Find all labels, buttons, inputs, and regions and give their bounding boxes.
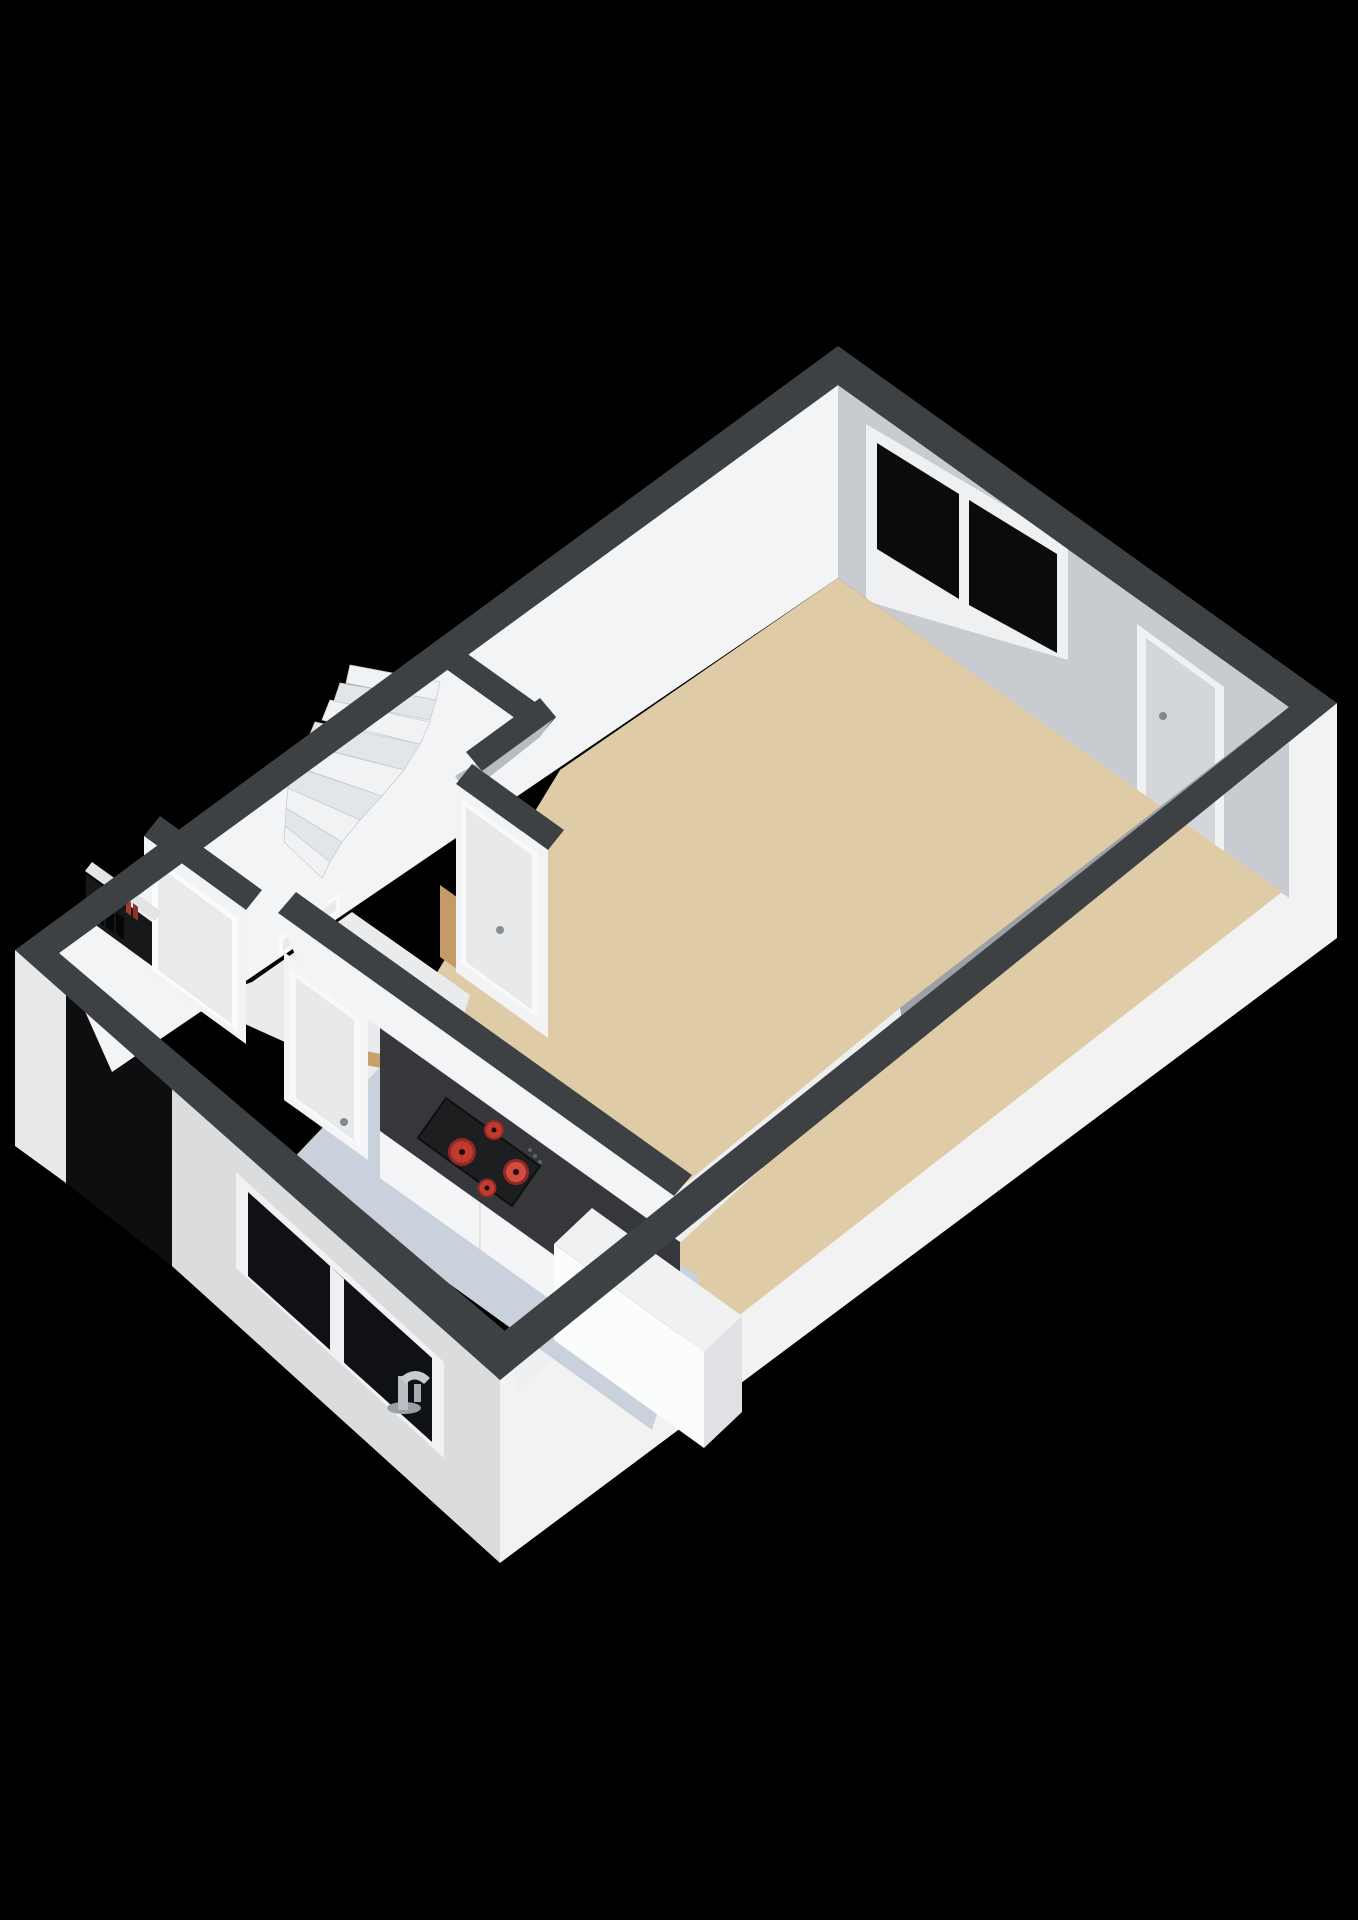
floorplan-3d-render [0, 0, 1358, 1920]
back-door-handle [1159, 712, 1167, 720]
floorplan-canvas [0, 0, 1358, 1920]
burner-center [485, 1186, 490, 1191]
hall-living-door-handle [496, 926, 504, 934]
burner-center [492, 1128, 497, 1133]
kitchen-window-mullion [330, 1266, 344, 1363]
burner-center [513, 1169, 519, 1175]
burner-center [459, 1149, 465, 1155]
hall-kitchen-door-handle [340, 1118, 348, 1126]
